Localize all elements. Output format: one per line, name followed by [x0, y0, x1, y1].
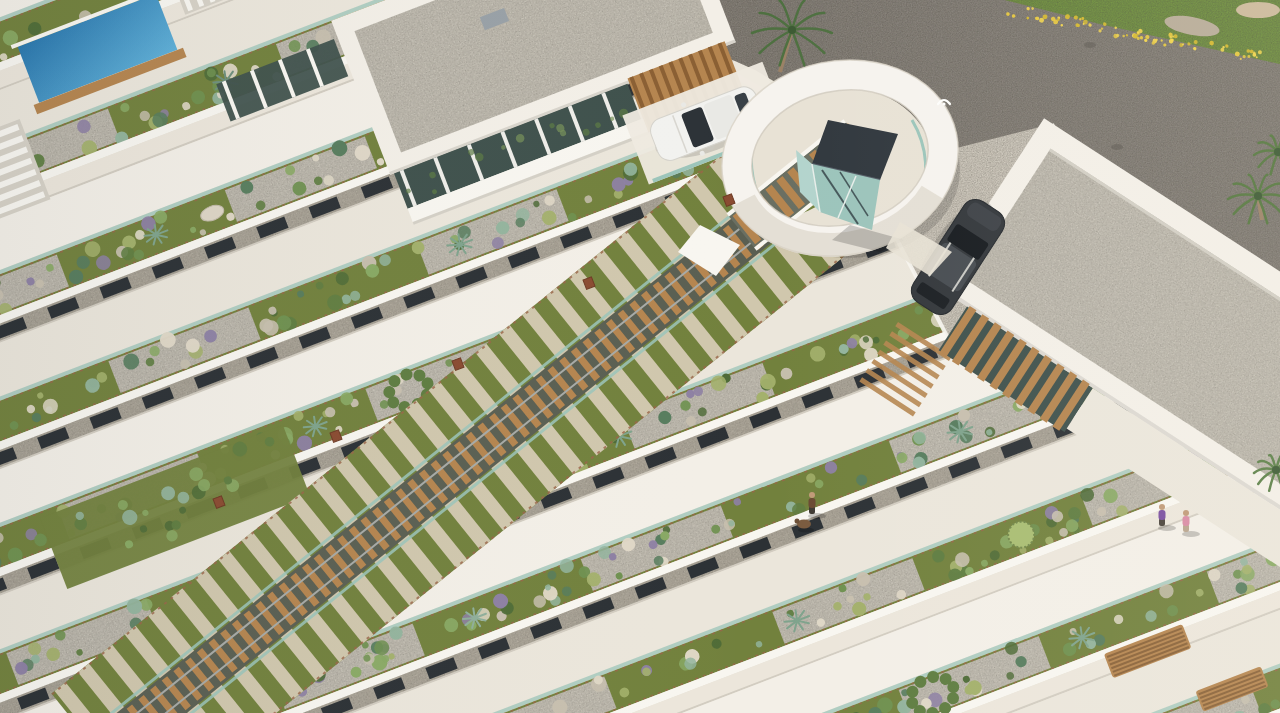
aerial-render-screenshot	[0, 0, 1280, 713]
scene-svg	[0, 0, 1280, 713]
light-overlay	[0, 0, 1280, 713]
